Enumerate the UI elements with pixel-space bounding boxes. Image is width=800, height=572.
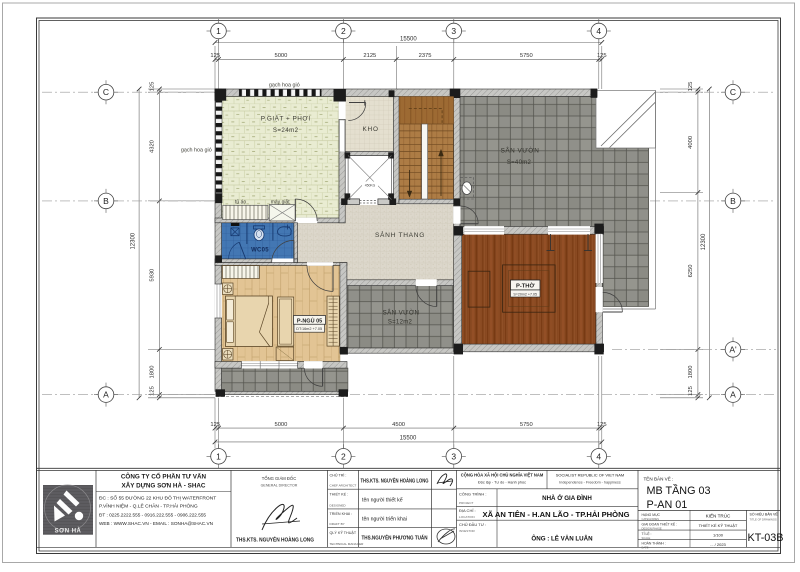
- svg-text:DRAFT BY: DRAFT BY: [330, 522, 345, 526]
- svg-text:WEB : WWW.SHAC.VN - EMAIL : SO: WEB : WWW.SHAC.VN - EMAIL : SONHA@SHAC.V…: [99, 521, 213, 526]
- svg-text:máy giặt: máy giặt: [271, 200, 291, 206]
- svg-text:SƠN HÀ: SƠN HÀ: [55, 528, 82, 535]
- svg-text:THIẾT KẾ :: THIẾT KẾ :: [330, 491, 349, 496]
- svg-text:4000: 4000: [688, 136, 694, 149]
- svg-text:125: 125: [597, 422, 607, 428]
- svg-text:KIẾN TRÚC: KIẾN TRÚC: [706, 512, 731, 518]
- svg-text:SẢNH THANG: SẢNH THANG: [375, 230, 425, 239]
- svg-text:ĐỊA CHỈ :: ĐỊA CHỈ :: [459, 508, 476, 513]
- svg-text:6250: 6250: [688, 264, 694, 277]
- svg-text:tủ áo: tủ áo: [235, 199, 246, 206]
- svg-text:CHỦ ĐẦU TƯ :: CHỦ ĐẦU TƯ :: [459, 522, 486, 527]
- svg-text:THIẾT KẾ KỸ THUẬT: THIẾT KẾ KỸ THUẬT: [699, 523, 738, 528]
- svg-text:HOÀN THÀNH :: HOÀN THÀNH :: [642, 542, 666, 546]
- svg-text:A': A': [729, 344, 737, 354]
- svg-text:ĐT : 0225.2222.555 - 0916.222.: ĐT : 0225.2222.555 - 0916.222.555 - 0906…: [99, 513, 206, 518]
- svg-text:CATEGORIES: CATEGORIES: [642, 517, 660, 521]
- svg-text:12300: 12300: [701, 233, 707, 250]
- svg-text:2375: 2375: [419, 53, 432, 59]
- svg-text:CHEF ARCHITECT: CHEF ARCHITECT: [330, 484, 357, 488]
- svg-text:XÃ AN TIÊN - H.AN LÃO - TP.HẢI: XÃ AN TIÊN - H.AN LÃO - TP.HẢI PHÒNG: [483, 510, 630, 519]
- svg-text:4500: 4500: [392, 422, 405, 428]
- svg-text:PROJECT: PROJECT: [459, 501, 474, 505]
- svg-text:DT:16m2 +7.05: DT:16m2 +7.05: [296, 327, 322, 331]
- svg-text:5750: 5750: [520, 422, 533, 428]
- svg-text:125: 125: [210, 422, 220, 428]
- svg-text:2125: 2125: [363, 53, 376, 59]
- svg-text:MB TẦNG 03: MB TẦNG 03: [647, 484, 711, 497]
- svg-text:ÔNG : LÊ VĂN LUÂN: ÔNG : LÊ VĂN LUÂN: [531, 535, 593, 543]
- svg-text:15500: 15500: [400, 36, 417, 42]
- svg-text:THS.NGUYỄN PHƯƠNG TUẤN: THS.NGUYỄN PHƯƠNG TUẤN: [362, 535, 428, 542]
- svg-text:Độc lập - Tự do - Hạnh phúc: Độc lập - Tự do - Hạnh phúc: [478, 481, 526, 485]
- svg-text:tên người thiết kế: tên người thiết kế: [362, 498, 403, 504]
- svg-text:DESIGN PHASE: DESIGN PHASE: [642, 526, 662, 530]
- svg-text:SCALE: SCALE: [642, 536, 651, 540]
- svg-text:P-AN 01: P-AN 01: [647, 499, 688, 511]
- svg-text:12300: 12300: [131, 232, 137, 249]
- svg-text:1: 1: [216, 451, 221, 461]
- svg-text:S=40m2: S=40m2: [507, 160, 532, 166]
- svg-text:LOCATION: LOCATION: [459, 515, 475, 519]
- svg-text:1: 1: [216, 26, 221, 36]
- svg-text:P.GIẶT + PHƠI: P.GIẶT + PHƠI: [261, 114, 311, 123]
- svg-text:ĐC : SỐ 55 ĐƯỜNG 22 KHU ĐÔ THỊ: ĐC : SỐ 55 ĐƯỜNG 22 KHU ĐÔ THỊ WATERFRON…: [99, 495, 216, 502]
- svg-text:THS.KTS. NGUYỄN HOÀNG LONG: THS.KTS. NGUYỄN HOÀNG LONG: [361, 478, 429, 485]
- svg-text:DESIGNED: DESIGNED: [330, 503, 347, 507]
- svg-text:P-NGỦ 05: P-NGỦ 05: [297, 317, 322, 324]
- svg-text:C: C: [103, 87, 109, 97]
- svg-text:1800: 1800: [150, 366, 156, 379]
- svg-text:S=20m2 +7.05: S=20m2 +7.05: [513, 292, 537, 296]
- svg-text:THS.KTS. NGUYỄN HOÀNG LONG: THS.KTS. NGUYỄN HOÀNG LONG: [236, 537, 314, 544]
- svg-text:CỘNG HÒA XÃ HỘI CHỦ NGHĨA VIỆT: CỘNG HÒA XÃ HỘI CHỦ NGHĨA VIỆT NAM: [461, 473, 544, 478]
- svg-text:GENERAL DIRECTOR: GENERAL DIRECTOR: [261, 484, 298, 488]
- svg-text:TRIỂN KHAI :: TRIỂN KHAI :: [330, 511, 353, 516]
- svg-text:SOCIALIST REPUBLIC OF VIET NAM: SOCIALIST REPUBLIC OF VIET NAM: [556, 473, 625, 478]
- svg-text:15500: 15500: [400, 436, 417, 442]
- svg-text:DATE: DATE: [642, 545, 649, 549]
- svg-text:HẠNG MỤC: HẠNG MỤC: [642, 513, 661, 517]
- svg-text:SÂN VƯỜN: SÂN VƯỜN: [383, 310, 420, 317]
- svg-text:TECHNICAL MANAGER: TECHNICAL MANAGER: [330, 542, 365, 546]
- svg-text:B: B: [730, 196, 736, 206]
- svg-text:CHỦ TRÌ :: CHỦ TRÌ :: [330, 473, 347, 478]
- svg-text:KT-03B: KT-03B: [748, 532, 784, 544]
- svg-text:A: A: [730, 390, 736, 400]
- svg-text:TÊN BẢN VẼ :: TÊN BẢN VẼ :: [644, 474, 674, 481]
- svg-text:5000: 5000: [274, 422, 287, 428]
- svg-text:S=12m2: S=12m2: [388, 320, 413, 326]
- svg-text:C: C: [730, 87, 736, 97]
- svg-text:CÔNG TRÌNH :: CÔNG TRÌNH :: [459, 491, 486, 496]
- svg-text:125: 125: [210, 53, 220, 59]
- svg-text:TỔNG GIÁM ĐỐC: TỔNG GIÁM ĐỐC: [262, 476, 296, 481]
- svg-text:5750: 5750: [520, 53, 533, 59]
- svg-text:Independence - Freedom - happi: Independence - Freedom - happiness: [559, 481, 621, 485]
- svg-text:tên người triển khai: tên người triển khai: [362, 516, 407, 523]
- svg-text:2: 2: [341, 26, 346, 36]
- svg-text:GIAI ĐOẠN THIẾT KẾ :: GIAI ĐOẠN THIẾT KẾ :: [642, 521, 678, 526]
- svg-text:4: 4: [596, 26, 601, 36]
- svg-text:TỈ LỆ :: TỈ LỆ :: [642, 531, 652, 536]
- svg-text:3: 3: [451, 451, 456, 461]
- svg-text:5000: 5000: [274, 53, 287, 59]
- svg-text:SÂN VƯỜN: SÂN VƯỜN: [501, 146, 540, 155]
- svg-text:WC05: WC05: [251, 248, 269, 254]
- svg-text:KHO: KHO: [362, 126, 378, 133]
- svg-text:125: 125: [688, 82, 694, 92]
- svg-text:125: 125: [150, 82, 156, 92]
- svg-text:TITLE OF DRAWINGS: TITLE OF DRAWINGS: [750, 517, 777, 521]
- svg-text:125: 125: [597, 53, 607, 59]
- svg-text:B: B: [103, 196, 109, 206]
- svg-text:4320: 4320: [150, 140, 156, 153]
- svg-text:QLÝ KỸ THUẬT: QLÝ KỸ THUẬT: [330, 530, 357, 535]
- svg-text:XÂY DỰNG SƠN HÀ - SHAC: XÂY DỰNG SƠN HÀ - SHAC: [122, 481, 206, 490]
- svg-text:... / 2023: ... / 2023: [710, 542, 726, 547]
- svg-text:SỐ HIỆU BẢN VẼ: SỐ HIỆU BẢN VẼ: [750, 512, 779, 517]
- svg-text:4: 4: [596, 451, 601, 461]
- svg-text:gạch hoa gió: gạch hoa gió: [181, 148, 212, 154]
- svg-text:A: A: [103, 390, 109, 400]
- svg-text:1800: 1800: [688, 366, 694, 379]
- svg-text:INVESTOR: INVESTOR: [459, 529, 476, 533]
- svg-text:2: 2: [341, 451, 346, 461]
- svg-text:450KG: 450KG: [365, 183, 376, 187]
- svg-text:NHÀ Ở GIA ĐÌNH: NHÀ Ở GIA ĐÌNH: [542, 494, 592, 502]
- svg-text:gạch hoa gió: gạch hoa gió: [269, 82, 300, 88]
- svg-text:1/100: 1/100: [713, 533, 724, 538]
- svg-text:3: 3: [451, 26, 456, 36]
- svg-text:S=24m2: S=24m2: [273, 127, 299, 134]
- svg-text:P-THỜ: P-THỜ: [516, 282, 535, 290]
- svg-text:5930: 5930: [150, 269, 156, 282]
